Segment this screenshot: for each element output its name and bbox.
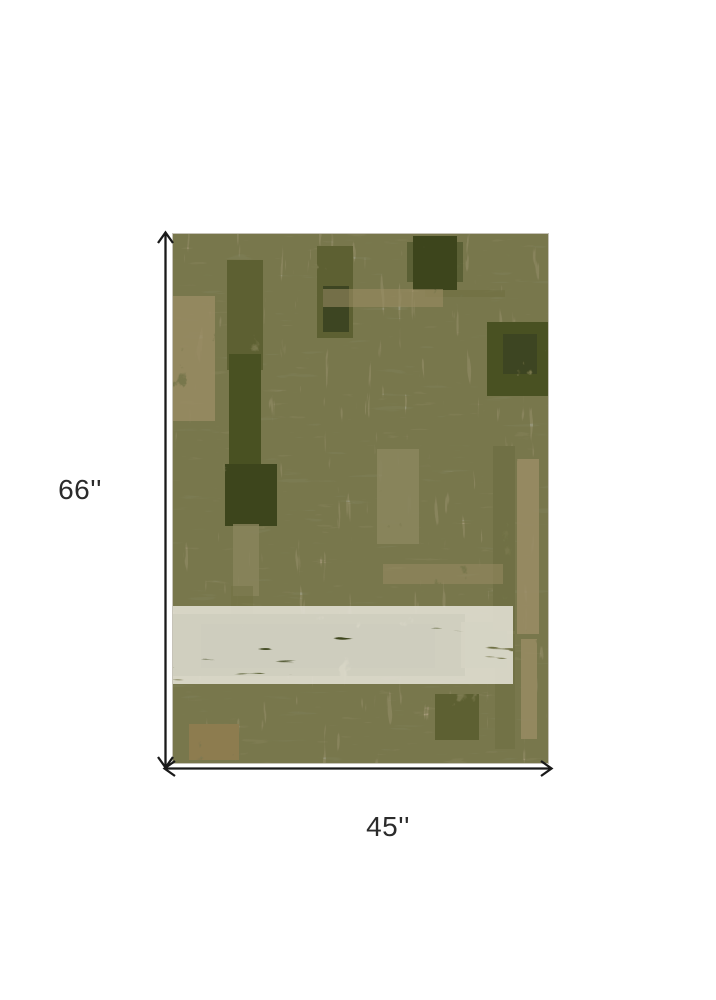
rug-right-tan-streak xyxy=(517,459,539,634)
rug-center-drip xyxy=(377,449,419,544)
rug-vertical-stripe-blob xyxy=(225,464,277,526)
rug-vertical-stripe-tail xyxy=(233,524,259,596)
rug-bottom-right-square xyxy=(435,694,479,740)
rug-tan-scratch-center xyxy=(383,564,503,584)
rug-vertical-stripe-middle xyxy=(229,354,261,474)
height-dimension-label: 66'' xyxy=(28,474,132,506)
rug-left-tan-marks xyxy=(173,296,215,421)
width-dimension-arrow xyxy=(162,757,554,781)
rug-artwork xyxy=(173,234,548,763)
rug-vertical-stripe-top xyxy=(227,260,263,370)
rug-right-patch-core xyxy=(503,334,537,374)
rug-right-tan-streak-lower xyxy=(521,639,537,739)
rug-ivory-wear-over-band xyxy=(173,606,513,684)
rug-top-blob xyxy=(413,236,457,290)
rug-tan-scratch-upper xyxy=(323,289,443,307)
rug-bottom-left-brown-patch xyxy=(189,724,239,760)
dimension-diagram: 66'' 45'' xyxy=(0,0,716,1000)
height-dimension-arrow xyxy=(154,230,178,770)
rug-image xyxy=(172,233,549,764)
rug-right-streak xyxy=(493,446,515,631)
width-dimension-label: 45'' xyxy=(336,811,440,843)
